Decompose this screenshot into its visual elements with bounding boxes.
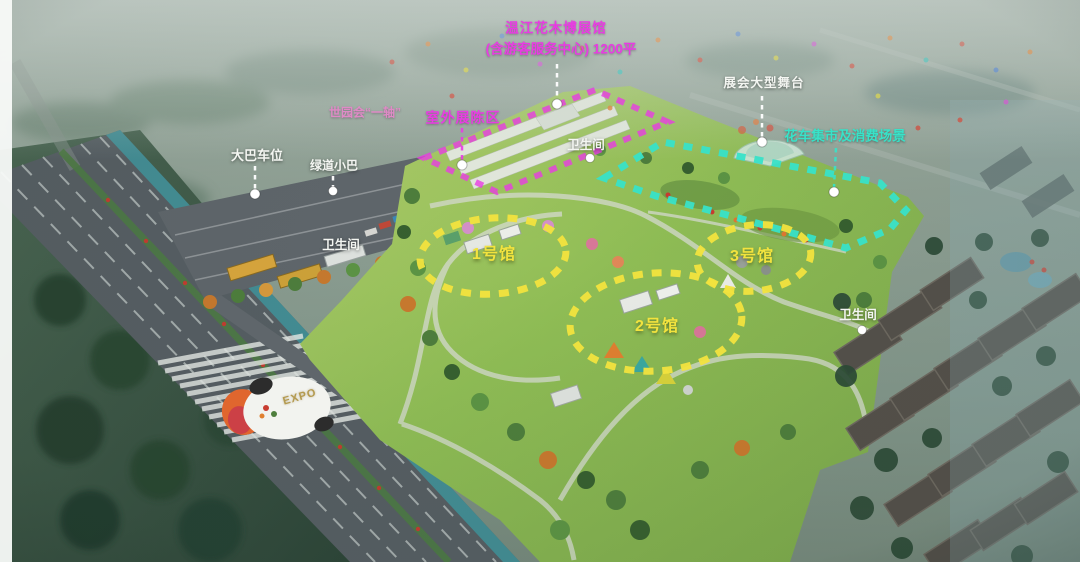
toilet-southeast-marker <box>858 326 867 335</box>
float-market-marker <box>829 187 839 197</box>
toilet-top-marker <box>586 154 595 163</box>
outdoor-exhibit-marker <box>457 160 467 170</box>
left-margin <box>0 0 12 562</box>
aerial-render <box>0 0 1080 562</box>
bus-parking-marker <box>250 189 260 199</box>
greenway-bus-marker <box>329 187 338 196</box>
expo-site-plan: 温江花木博展馆 (含游客服务中心) 1200平 展会大型舞台 世园会“一轴” 室… <box>0 0 1080 562</box>
main-hall-marker <box>552 99 562 109</box>
stage-marker <box>757 137 767 147</box>
